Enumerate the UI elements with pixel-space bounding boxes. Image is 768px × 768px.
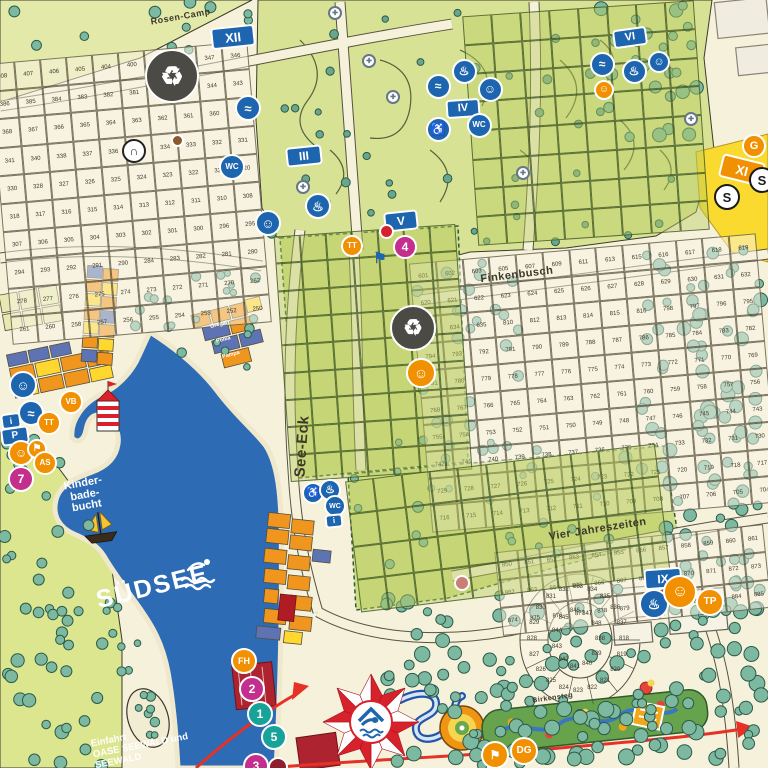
sanitary-baby2-icon: ☺ — [478, 77, 503, 102]
campground-map: 4084074064054044003493483473463863853843… — [0, 0, 768, 768]
water-tap1-icon: ✚ — [328, 6, 342, 20]
water-tap3-icon: ✚ — [386, 90, 400, 104]
bus-stop-7-badge: 7 — [8, 466, 34, 492]
water-tap2-icon: ✚ — [362, 54, 376, 68]
tp-badge: TP — [696, 588, 724, 616]
sanitary-shower3-icon: ♨ — [622, 59, 647, 84]
marker-dot-icon — [171, 134, 184, 147]
dg-badge: DG — [510, 737, 538, 765]
sanitary-wc2-icon: WC — [467, 113, 492, 138]
bus-stop-1-badge: 1 — [247, 701, 273, 727]
sanitary-laundry-icon: ≈ — [235, 95, 261, 121]
kids-club-icon: ☺ — [9, 371, 37, 399]
ferry-fh-badge: FH — [231, 648, 257, 674]
minigolf-icon: ⚑ — [481, 741, 509, 768]
sanitary-access2-icon: ♿ — [426, 117, 451, 142]
district-vi-badge: VI — [612, 25, 648, 49]
trampoline2-badge: TT — [37, 411, 61, 435]
district-xii-badge: XII — [210, 24, 256, 50]
bus-stop-3-badge: 3 — [243, 753, 269, 768]
sanitary-shower2-icon: ♨ — [452, 59, 477, 84]
playground-slide-icon: ☺ — [406, 358, 436, 388]
sanitary-shower-icon: ♨ — [305, 193, 331, 219]
sanitary-laundry2-icon: ≈ — [426, 74, 451, 99]
water-tap4-icon: ✚ — [296, 180, 310, 194]
bus-stop-4-badge: 4 — [393, 235, 417, 259]
info2-icon: i — [324, 513, 343, 529]
climbing-icon: ☺ — [663, 575, 697, 609]
flag-marker-icon: ⚑ — [371, 249, 389, 267]
sanitary-laundry3-icon: ≈ — [590, 52, 615, 77]
bus-stop-5-badge: 5 — [261, 724, 287, 750]
marker-salmon-icon — [454, 575, 470, 591]
bus-stop-s2-badge: S — [749, 167, 768, 193]
bus-stop-2-badge: 2 — [239, 676, 265, 702]
waste-station2-icon: ♻ — [390, 305, 436, 351]
underpass-icon: ∩ — [122, 139, 146, 163]
sanitary-wc-icon: WC — [219, 154, 245, 180]
marker-g-badge: G — [742, 134, 766, 158]
adventure-as-badge: AS — [33, 451, 57, 475]
bus-stop-s1-badge: S — [714, 184, 740, 210]
marker-darkred-icon — [268, 757, 288, 768]
waste-station-icon: ♻ — [145, 49, 199, 103]
marker-red-icon — [379, 224, 394, 239]
play-area-icon: ☺ — [594, 80, 614, 100]
sanitary-baby-icon: ☺ — [255, 210, 281, 236]
water-tap5-icon: ✚ — [516, 166, 530, 180]
viewpoint-vb-badge: VB — [59, 390, 83, 414]
trampoline-badge: TT — [341, 235, 363, 257]
district-iii-badge: III — [285, 144, 323, 168]
badge-layer: XII♻∩≈WCIII☺♨V4TTIV≈♨☺WC♿VI≈♨☺☺XIGSS♻☺☺≈… — [0, 0, 768, 768]
sanitary-baby3-icon: ☺ — [648, 51, 670, 73]
water-tap6-icon: ✚ — [684, 112, 698, 126]
